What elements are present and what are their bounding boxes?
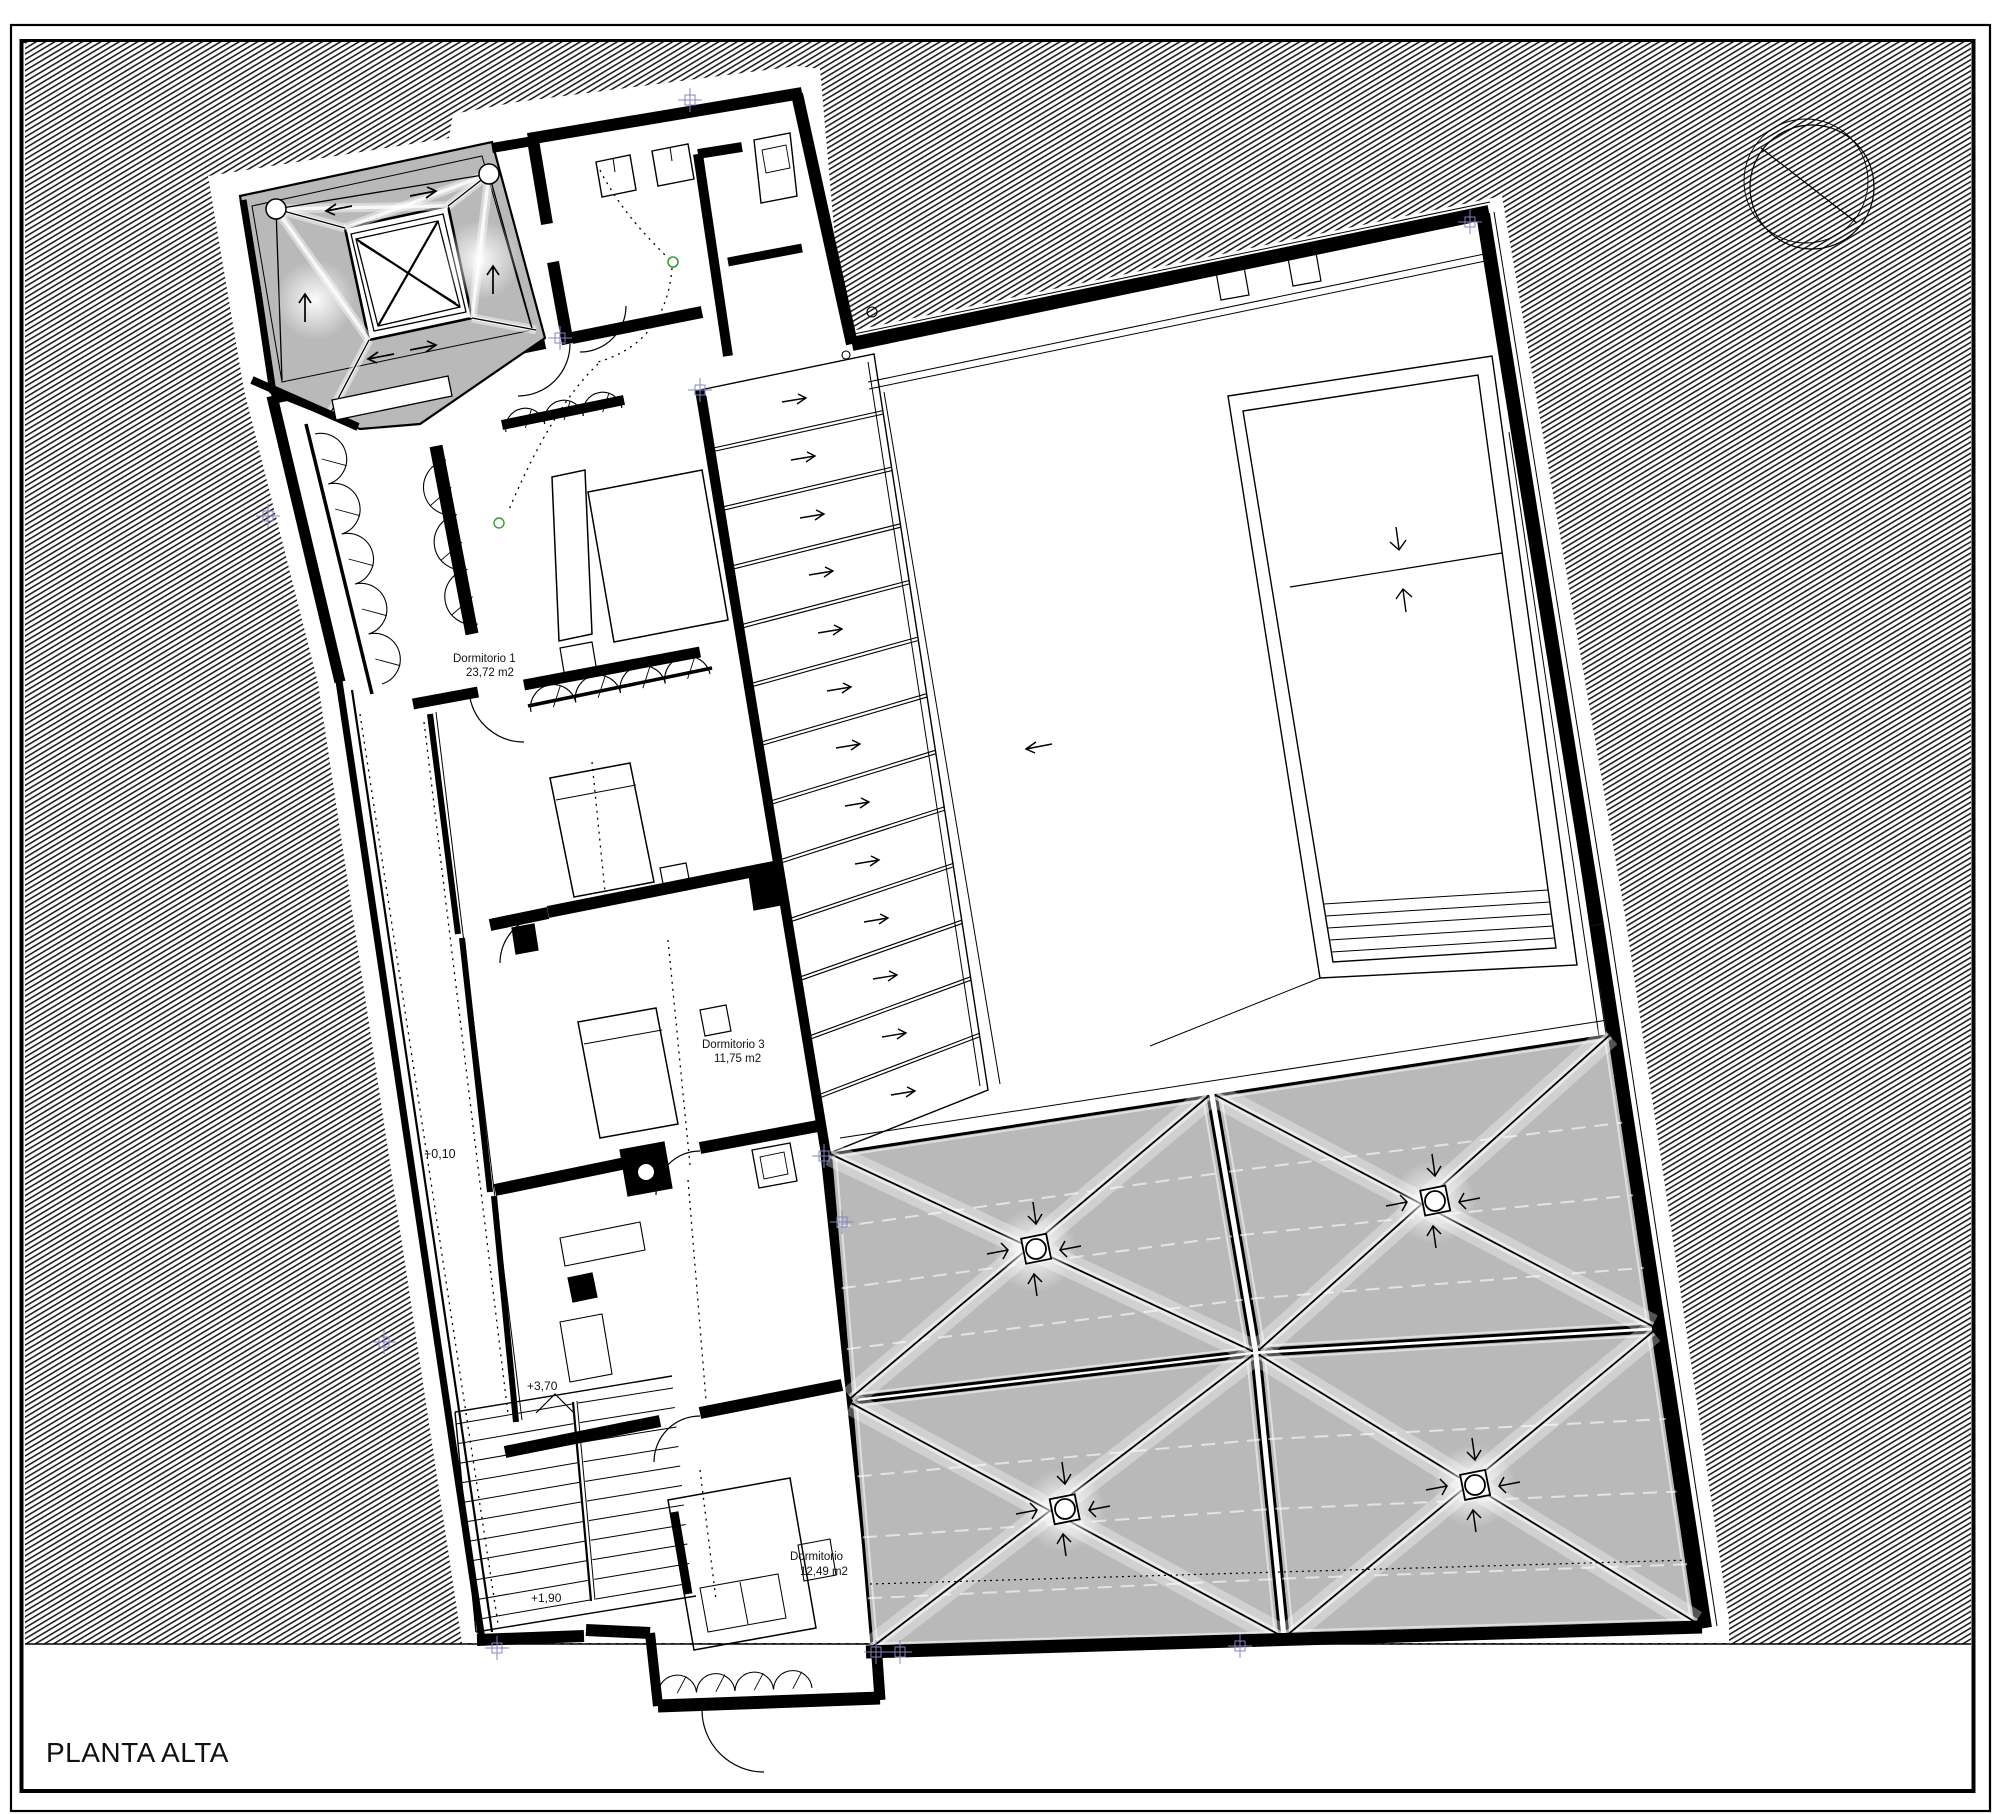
svg-text:Dormitorio 1: Dormitorio 1 <box>453 653 516 665</box>
svg-text:Dormitorio: Dormitorio <box>790 1551 843 1563</box>
svg-text:+1,90: +1,90 <box>531 1591 562 1605</box>
svg-text:23,72 m2: 23,72 m2 <box>466 667 514 679</box>
svg-text:PLANTA ALTA: PLANTA ALTA <box>46 1737 229 1768</box>
svg-text:11,75 m2: 11,75 m2 <box>714 1053 761 1065</box>
svg-text:12,49 m2: 12,49 m2 <box>800 1566 848 1578</box>
svg-text:+0,10: +0,10 <box>424 1147 456 1161</box>
svg-text:+3,70: +3,70 <box>527 1379 558 1393</box>
svg-text:Dormitorio 3: Dormitorio 3 <box>702 1039 765 1051</box>
